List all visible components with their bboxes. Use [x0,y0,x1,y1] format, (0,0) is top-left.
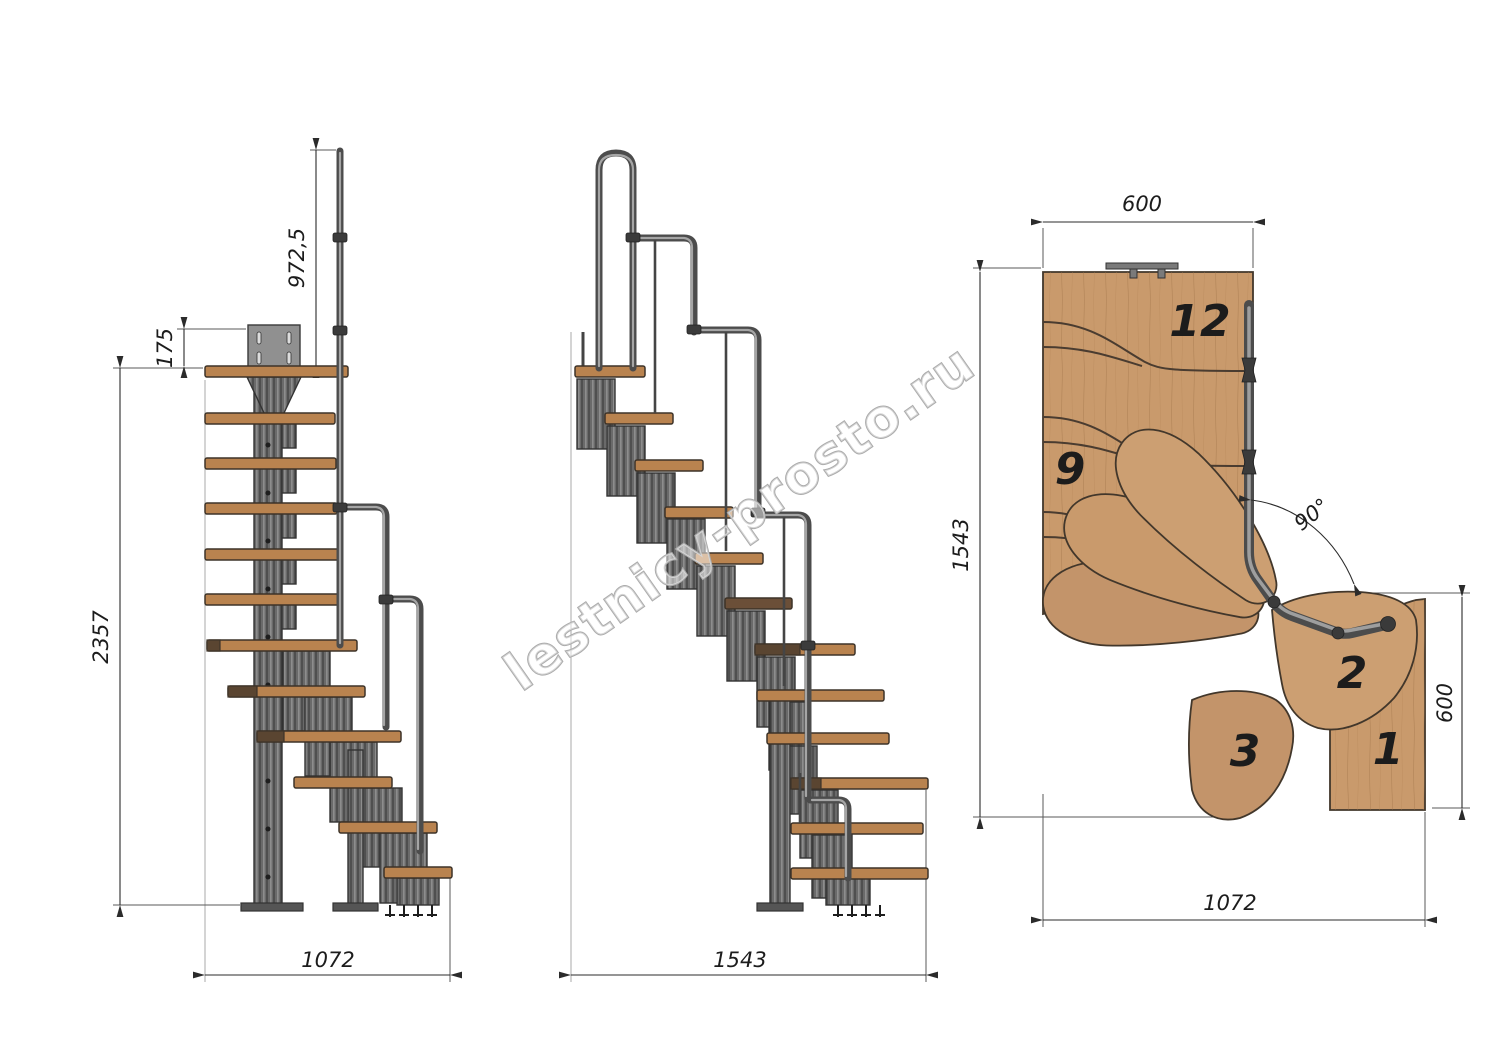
rail-elbow [1332,627,1344,639]
mounting-plate [248,325,300,372]
plan-view: 600 1543 600 1072 [949,192,1470,927]
dim-label-base-width: 1543 [713,948,766,972]
step-number-9: 9 [1055,444,1086,495]
side-view-front: 2357 972,5 175 1072 [89,150,452,982]
dim-label-bottom-width: 1072 [1203,891,1256,915]
support-foot-plate [757,903,803,911]
step-number-1: 1 [1373,724,1404,775]
dim-label-total-height: 2357 [89,610,113,664]
plan-handrail [1242,305,1396,639]
step-number-2: 2 [1337,648,1368,699]
staircase-technical-drawing: 2357 972,5 175 1072 [0,0,1500,1061]
support-post [770,695,790,905]
treads [205,366,452,878]
dim-label-base-width: 1072 [301,948,354,972]
step-number-3: 3 [1230,726,1261,777]
dim-label-side-length: 1543 [949,518,973,571]
column-foot-plate [241,903,303,911]
step-number-12: 12 [1169,296,1230,347]
dim-label-rail-height: 972,5 [285,228,309,288]
rail-end-cap [1381,617,1396,632]
step-modules [282,420,439,917]
angle-label: 90° [1290,494,1334,536]
anchor-bolts [385,905,437,917]
dim-label-right-width: 600 [1433,683,1457,723]
drawing-canvas: 2357 972,5 175 1072 [0,0,1500,1061]
support-foot-plate [333,903,378,911]
dim-label-top-width: 600 [1122,192,1162,216]
anchor-bolts [833,905,885,917]
rail-elbow [1268,596,1280,608]
dim-label-plate-offset: 175 [153,328,177,368]
landing-tread [205,366,348,377]
